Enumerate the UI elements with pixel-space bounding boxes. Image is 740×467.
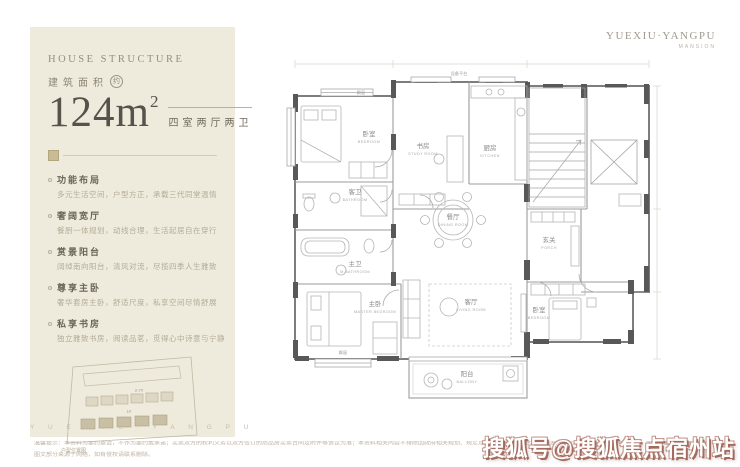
feature-title: 赏景阳台 xyxy=(48,245,217,258)
siteplan-svg: 2-7# 1# 户型位置图 xyxy=(53,353,213,455)
room-label-living-cn: 客厅 xyxy=(465,297,479,306)
siteplan-row2-label: 1# xyxy=(126,409,131,414)
feature-desc: 独立雅致书房，阅读品茗，觅得心中诗意与宁静 xyxy=(48,333,217,344)
headline-row: 124m2 四室两厅两卫 xyxy=(48,91,217,134)
room-label-study-cn: 书房 xyxy=(417,141,430,150)
sohu-watermark: 搜狐号@搜狐焦点宿州站 xyxy=(483,431,735,463)
room-label-porch-en: PORCH xyxy=(541,246,557,250)
room-label-porch-cn: 玄关 xyxy=(543,235,557,244)
feature-item: 功能布局 多元生活空间，户型方正，承载三代同堂温情 xyxy=(48,173,217,200)
layout-tag-block: 四室两厅两卫 xyxy=(168,107,252,129)
feature-title: 功能布局 xyxy=(48,173,217,186)
floorplan-svg: 卧室 BEDROOM 书房 STUDY ROOM 厨房 KITCHEN 客卫 B… xyxy=(281,44,665,422)
area-label: 建筑面积 xyxy=(48,74,108,89)
feature-item: 奢阔宽厅 餐厨一体规划，动线合理，生活起居自在穿行 xyxy=(48,209,217,236)
circle-bullet-icon xyxy=(48,250,52,254)
circle-bullet-icon xyxy=(48,178,52,182)
room-label-bedroom1-cn: 卧室 xyxy=(363,129,377,138)
floorplan-poster: { "brand": { "logo_main": "YUEXIU·YANGPU… xyxy=(0,0,740,467)
room-label-kitchen-cn: 厨房 xyxy=(484,143,497,152)
layout-tag: 四室两厅两卫 xyxy=(168,114,252,129)
feature-item: 赏景阳台 阔绰南向阳台，清风对流，尽揽四季人生雅致 xyxy=(48,245,217,272)
divider-line xyxy=(63,155,217,156)
furniture xyxy=(301,86,641,389)
feature-desc: 多元生活空间，户型方正，承载三代同堂温情 xyxy=(48,189,217,200)
room-label-mbath-en: M.BATHROOM xyxy=(340,270,370,274)
interior-walls xyxy=(295,82,649,359)
brand-logo-main: YUEXIU·YANGPU xyxy=(606,30,716,42)
room-label-balcony-cn: 阳台 xyxy=(461,369,474,378)
room-label-balcony-en: BALCONY xyxy=(457,380,478,384)
circle-bullet-icon xyxy=(48,214,52,218)
room-label-mbath-cn: 主卫 xyxy=(349,259,363,268)
area-label-row: 建筑面积 约 xyxy=(48,74,217,89)
bay-window-label-bottom: 飘窗 xyxy=(339,349,347,356)
feature-desc: 餐厨一体规划，动线合理，生活起居自在穿行 xyxy=(48,225,217,236)
room-label-dining-cn: 餐厅 xyxy=(447,212,461,221)
floorplan-drawing: 卧室 BEDROOM 书房 STUDY ROOM 厨房 KITCHEN 客卫 B… xyxy=(281,44,665,422)
area-superscript: 2 xyxy=(150,92,160,111)
section-divider xyxy=(48,150,217,161)
room-label-master-en: MASTER BEDROOM xyxy=(354,310,396,314)
approx-circle-badge: 约 xyxy=(110,75,123,88)
area-value: 124m2 xyxy=(48,91,159,134)
room-label-living-en: LIVING ROOM xyxy=(456,308,486,312)
siteplan-buildings-row1 xyxy=(86,392,173,406)
room-label-study-en: STUDY ROOM xyxy=(408,152,438,156)
feature-item: 尊享主卧 奢华套房主卧，舒适尺度，私享空间尽情舒展 xyxy=(48,281,217,308)
room-label-master-cn: 主卧 xyxy=(369,299,383,308)
feature-desc: 奢华套房主卧，舒适尺度，私享空间尽情舒展 xyxy=(48,297,217,308)
feature-title: 奢阔宽厅 xyxy=(48,209,217,222)
circle-bullet-icon xyxy=(48,322,52,326)
room-label-bedroom2-en: BEDROOM xyxy=(528,316,550,320)
room-label-dining-en: DINING ROOM xyxy=(438,223,469,227)
room-label-bedroom1-en: BEDROOM xyxy=(358,140,380,144)
shear-walls xyxy=(293,79,649,361)
feature-desc: 阔绰南向阳台，清风对流，尽揽四季人生雅致 xyxy=(48,261,217,272)
feature-title: 尊享主卧 xyxy=(48,281,217,294)
feature-list: 功能布局 多元生活空间，户型方正，承载三代同堂温情 奢阔宽厅 餐厨一体规划，动线… xyxy=(48,173,217,344)
panel-eyebrow: HOUSE STRUCTURE xyxy=(48,54,217,65)
room-label-bedroom2-cn: 卧室 xyxy=(533,305,547,314)
info-panel: HOUSE STRUCTURE 建筑面积 约 124m2 四室两厅两卫 功能布局… xyxy=(30,27,235,437)
disclaimer-text-2: 图文部分来源于网络，如有侵权请联系删除。 xyxy=(34,450,334,458)
siteplan-row1-label: 2-7# xyxy=(134,388,143,393)
room-label-bath-en: BATHROOM xyxy=(343,198,368,202)
windows xyxy=(287,77,527,367)
room-label-kitchen-en: KITCHEN xyxy=(480,154,499,158)
feature-title: 私享书房 xyxy=(48,317,217,330)
elevator-shaft xyxy=(591,140,637,184)
room-label-bath-cn: 客卫 xyxy=(349,187,363,196)
stairwell xyxy=(529,88,585,207)
layout-tag-rule xyxy=(168,107,252,108)
feature-item: 私享书房 独立雅致书房，阅读品茗，觅得心中诗意与宁静 xyxy=(48,317,217,344)
equipment-platform-label: 设备平台 xyxy=(451,70,468,77)
circle-bullet-icon xyxy=(48,286,52,290)
dimension-lines xyxy=(295,60,661,359)
divider-square-icon xyxy=(48,150,59,161)
bay-window-label-top: 飘窗 xyxy=(357,89,365,96)
panel-footer-letters: Y U E X I U · Y A N G P U xyxy=(30,424,235,431)
outer-walls xyxy=(295,82,649,359)
